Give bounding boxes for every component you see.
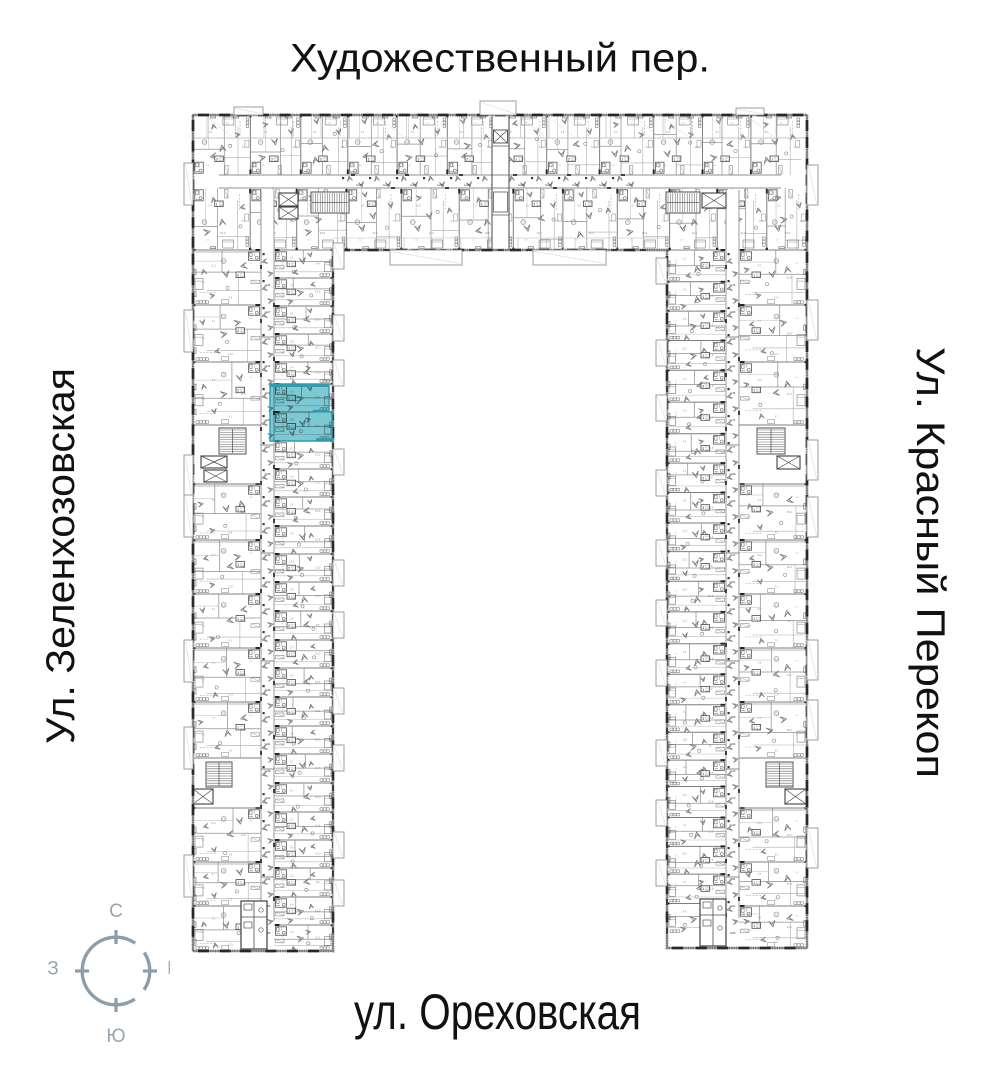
svg-text:36.4: 36.4: [705, 509, 709, 511]
svg-text:12.0: 12.0: [315, 852, 321, 856]
svg-text:1: 1: [702, 354, 704, 358]
svg-text:36.4: 36.4: [291, 293, 295, 295]
svg-text:2: 2: [368, 202, 370, 206]
svg-text:2: 2: [466, 157, 468, 161]
svg-text:8.2: 8.2: [316, 880, 320, 884]
svg-text:1: 1: [753, 389, 755, 393]
svg-text:1: 1: [288, 739, 290, 743]
svg-text:1: 1: [237, 881, 239, 885]
svg-text:36.4: 36.4: [291, 741, 295, 743]
svg-text:36.4: 36.4: [372, 205, 376, 207]
svg-text:№15: №15: [518, 183, 524, 187]
svg-text:2: 2: [237, 329, 239, 333]
svg-text:36.4: 36.4: [756, 276, 760, 278]
svg-text:12.2: 12.2: [787, 565, 793, 569]
svg-text:15.2: 15.2: [785, 231, 791, 235]
svg-text:2: 2: [288, 567, 290, 571]
svg-text:1: 1: [288, 910, 290, 914]
svg-text:2: 2: [702, 476, 704, 480]
svg-text:17.5: 17.5: [787, 882, 793, 886]
svg-text:15.2: 15.2: [787, 510, 793, 514]
svg-text:10.6: 10.6: [774, 941, 779, 944]
svg-text:2: 2: [288, 291, 290, 295]
svg-text:36.4: 36.4: [705, 419, 709, 421]
svg-text:1: 1: [753, 508, 755, 512]
svg-text:36.4: 36.4: [705, 327, 709, 329]
svg-text:36.4: 36.4: [756, 566, 760, 568]
svg-text:36.4: 36.4: [240, 276, 244, 278]
svg-text:36.4: 36.4: [705, 356, 709, 358]
svg-text:36.4: 36.4: [371, 160, 375, 162]
svg-text:1: 1: [753, 329, 755, 333]
svg-text:10.1: 10.1: [315, 936, 321, 940]
svg-text:36.4: 36.4: [756, 834, 760, 836]
svg-text:1: 1: [237, 925, 239, 929]
svg-text:2: 2: [237, 273, 239, 277]
svg-text:36.4: 36.4: [536, 205, 540, 207]
svg-text:36.4: 36.4: [705, 567, 709, 569]
svg-text:1: 1: [753, 617, 755, 621]
svg-text:36.4: 36.4: [291, 265, 295, 267]
svg-text:36.4: 36.4: [705, 267, 709, 269]
svg-text:8.7: 8.7: [709, 744, 713, 748]
svg-text:№40: №40: [437, 183, 443, 187]
svg-text:11.5: 11.5: [682, 530, 687, 533]
svg-text:Ул. Зеленхозовская: Ул. Зеленхозовская: [39, 368, 83, 744]
svg-text:36.4: 36.4: [240, 620, 244, 622]
svg-text:8.3: 8.3: [787, 673, 791, 677]
svg-text:10.0: 10.0: [315, 346, 321, 350]
svg-text:1: 1: [585, 202, 587, 206]
svg-text:10.4: 10.4: [774, 296, 779, 299]
svg-text:2: 2: [288, 681, 290, 685]
svg-text:1: 1: [481, 202, 483, 206]
svg-text:11.2: 11.2: [315, 652, 321, 656]
svg-text:12.9: 12.9: [289, 560, 294, 563]
svg-text:36.4: 36.4: [240, 884, 244, 886]
svg-text:15.9: 15.9: [315, 795, 321, 799]
svg-text:1: 1: [702, 657, 704, 661]
svg-text:С: С: [109, 901, 123, 922]
svg-text:1: 1: [288, 595, 290, 599]
svg-text:36.4: 36.4: [274, 160, 278, 162]
svg-text:11.1: 11.1: [289, 875, 294, 878]
svg-text:14.5: 14.5: [315, 290, 321, 294]
svg-text:36.4: 36.4: [756, 674, 760, 676]
svg-text:36.4: 36.4: [705, 387, 709, 389]
svg-text:12.4: 12.4: [591, 146, 596, 149]
svg-text:13.0: 13.0: [429, 231, 435, 235]
svg-text:36.4: 36.4: [240, 332, 244, 334]
svg-text:1: 1: [702, 416, 704, 420]
svg-text:12.5: 12.5: [757, 822, 762, 825]
svg-text:36.4: 36.4: [291, 349, 295, 351]
svg-text:12.7: 12.7: [289, 646, 294, 649]
svg-text:10.2: 10.2: [211, 554, 216, 557]
svg-text:13.9: 13.9: [372, 231, 378, 235]
svg-text:36.4: 36.4: [641, 205, 645, 207]
svg-text:3: 3: [702, 324, 704, 328]
svg-text:1: 1: [771, 157, 773, 161]
svg-text:12.5: 12.5: [682, 559, 687, 562]
svg-text:13.8: 13.8: [757, 379, 762, 382]
svg-text:Художественный пер.: Художественный пер.: [290, 37, 710, 81]
svg-text:11.8: 11.8: [774, 694, 779, 697]
svg-text:1: 1: [515, 157, 517, 161]
svg-text:16.4: 16.4: [315, 824, 321, 828]
svg-text:36.4: 36.4: [705, 775, 709, 777]
svg-text:13.4: 13.4: [682, 589, 687, 592]
svg-text:12.7: 12.7: [776, 205, 781, 208]
svg-text:1: 1: [288, 653, 290, 657]
svg-text:З: З: [47, 959, 58, 980]
svg-text:11.0: 11.0: [315, 566, 321, 570]
svg-text:36.4: 36.4: [291, 655, 295, 657]
svg-text:1: 1: [753, 726, 755, 730]
svg-text:36.4: 36.4: [291, 713, 295, 715]
svg-text:14.8: 14.8: [740, 231, 746, 235]
svg-text:12.4: 12.4: [589, 231, 595, 235]
svg-text:13.9: 13.9: [228, 694, 233, 697]
svg-text:Ул. Красный Перекоп: Ул. Красный Перекоп: [908, 347, 952, 778]
svg-text:1: 1: [288, 710, 290, 714]
svg-text:1: 1: [237, 508, 239, 512]
svg-text:3: 3: [271, 157, 273, 161]
svg-text:1: 1: [722, 157, 724, 161]
svg-text:36.4: 36.4: [291, 375, 295, 377]
svg-text:36.4: 36.4: [677, 160, 681, 162]
svg-text:2: 2: [753, 671, 755, 675]
svg-text:12.7: 12.7: [289, 447, 294, 450]
svg-text:3: 3: [288, 372, 290, 376]
svg-text:1: 1: [702, 688, 704, 692]
svg-text:№12: №12: [626, 183, 632, 187]
svg-text:1: 1: [288, 263, 290, 267]
svg-text:3: 3: [216, 157, 218, 161]
svg-text:1: 1: [621, 157, 623, 161]
svg-text:2: 2: [288, 624, 290, 628]
svg-text:13.7: 13.7: [787, 833, 793, 837]
svg-text:36.4: 36.4: [219, 205, 223, 207]
svg-text:10.0: 10.0: [800, 220, 805, 223]
svg-text:36.4: 36.4: [756, 620, 760, 622]
svg-text:36.4: 36.4: [705, 479, 709, 481]
svg-text:3: 3: [288, 319, 290, 323]
svg-text:19.0: 19.0: [536, 231, 542, 235]
svg-text:16.1: 16.1: [315, 453, 321, 457]
svg-text:№11: №11: [572, 183, 578, 187]
svg-text:36.4: 36.4: [756, 927, 760, 929]
svg-text:13.3: 13.3: [228, 353, 233, 356]
svg-text:36.4: 36.4: [725, 160, 729, 162]
svg-text:36.4: 36.4: [484, 205, 488, 207]
svg-text:13.4: 13.4: [211, 822, 216, 825]
svg-text:1: 1: [753, 924, 755, 928]
svg-text:№13: №13: [545, 183, 551, 187]
svg-text:11.3: 11.3: [682, 619, 687, 622]
svg-text:12.8: 12.8: [787, 276, 793, 280]
svg-text:№18: №18: [356, 183, 362, 187]
svg-text:12.8: 12.8: [708, 830, 714, 834]
svg-text:36.4: 36.4: [291, 912, 295, 914]
svg-text:11.2: 11.2: [473, 205, 478, 208]
svg-text:1: 1: [237, 671, 239, 675]
svg-text:36.4: 36.4: [705, 890, 709, 892]
svg-text:3: 3: [702, 717, 704, 721]
svg-text:1: 1: [702, 295, 704, 299]
svg-text:2: 2: [288, 825, 290, 829]
svg-text:36.4: 36.4: [291, 884, 295, 886]
svg-text:11.9: 11.9: [228, 944, 233, 947]
svg-text:10.0: 10.0: [787, 332, 793, 336]
svg-text:36.4: 36.4: [291, 627, 295, 629]
svg-text:36.4: 36.4: [740, 205, 744, 207]
svg-text:10.7: 10.7: [757, 608, 762, 611]
svg-text:14.4: 14.4: [315, 766, 321, 770]
svg-text:12.5: 12.5: [709, 220, 714, 223]
svg-text:13.7: 13.7: [526, 205, 531, 208]
svg-text:11.9: 11.9: [315, 538, 321, 542]
svg-text:12.3: 12.3: [774, 353, 779, 356]
svg-text:36.4: 36.4: [518, 160, 522, 162]
svg-text:15.6: 15.6: [315, 594, 321, 598]
svg-text:№35: №35: [599, 183, 605, 187]
svg-text:11.6: 11.6: [315, 709, 321, 713]
svg-text:1: 1: [237, 726, 239, 730]
svg-text:№56: №56: [730, 931, 736, 935]
svg-text:2: 2: [638, 202, 640, 206]
svg-text:2: 2: [702, 264, 704, 268]
svg-text:36.4: 36.4: [469, 160, 473, 162]
svg-text:Ю: Ю: [106, 1026, 125, 1047]
svg-text:36.4: 36.4: [291, 513, 295, 515]
svg-text:3: 3: [702, 447, 704, 451]
svg-text:12.6: 12.6: [289, 340, 294, 343]
svg-text:36.4: 36.4: [571, 160, 575, 162]
svg-text:1: 1: [753, 273, 755, 277]
svg-text:11.7: 11.7: [338, 220, 343, 223]
svg-text:1: 1: [702, 626, 704, 630]
svg-text:1: 1: [417, 157, 419, 161]
svg-text:18.6: 18.6: [315, 318, 321, 322]
svg-text:14.6: 14.6: [315, 680, 321, 684]
svg-text:36.4: 36.4: [756, 884, 760, 886]
svg-text:13.8: 13.8: [757, 554, 762, 557]
svg-text:1: 1: [673, 157, 675, 161]
svg-text:1: 1: [702, 772, 704, 776]
svg-text:1: 1: [288, 454, 290, 458]
svg-text:36.4: 36.4: [705, 629, 709, 631]
svg-text:36.4: 36.4: [705, 538, 709, 540]
svg-text:9.6: 9.6: [316, 623, 320, 627]
svg-text:10.8: 10.8: [416, 205, 421, 208]
svg-text:36.4: 36.4: [240, 510, 244, 512]
svg-text:11.7: 11.7: [694, 146, 699, 149]
svg-text:12.5: 12.5: [692, 231, 698, 235]
svg-text:36.4: 36.4: [756, 391, 760, 393]
svg-text:36.4: 36.4: [624, 160, 628, 162]
svg-text:19.9: 19.9: [642, 231, 648, 235]
svg-text:1: 1: [216, 202, 218, 206]
svg-text:3: 3: [702, 384, 704, 388]
svg-text:36.4: 36.4: [291, 598, 295, 600]
svg-text:36.4: 36.4: [774, 160, 778, 162]
svg-text:12.8: 12.8: [666, 131, 671, 134]
svg-text:15.2: 15.2: [220, 231, 226, 235]
svg-text:11.3: 11.3: [682, 766, 687, 769]
svg-text:36.4: 36.4: [219, 160, 223, 162]
svg-text:3: 3: [702, 506, 704, 510]
svg-text:1: 1: [702, 887, 704, 891]
svg-text:36.4: 36.4: [240, 566, 244, 568]
svg-text:1: 1: [237, 617, 239, 621]
svg-text:№34: №34: [383, 183, 389, 187]
svg-text:12.5: 12.5: [228, 586, 233, 589]
svg-text:1: 1: [368, 157, 370, 161]
svg-text:36.4: 36.4: [756, 510, 760, 512]
svg-text:13.7: 13.7: [292, 146, 297, 149]
svg-text:12.1: 12.1: [211, 265, 216, 268]
svg-text:2: 2: [237, 389, 239, 393]
svg-text:19.9: 19.9: [320, 231, 326, 235]
svg-text:36.4: 36.4: [323, 160, 327, 162]
svg-text:1: 1: [702, 859, 704, 863]
svg-text:3: 3: [533, 202, 535, 206]
svg-text:9.4: 9.4: [316, 262, 320, 266]
svg-text:13.8: 13.8: [682, 739, 687, 742]
svg-text:11.7: 11.7: [439, 146, 444, 149]
svg-text:36.4: 36.4: [291, 770, 295, 772]
svg-text:36.4: 36.4: [291, 569, 295, 571]
svg-text:14.5: 14.5: [315, 370, 321, 374]
svg-text:1: 1: [288, 482, 290, 486]
svg-text:3: 3: [702, 565, 704, 569]
svg-text:№29: №29: [410, 183, 416, 187]
svg-text:2: 2: [288, 510, 290, 514]
svg-text:14.1: 14.1: [787, 925, 793, 929]
svg-text:10.2: 10.2: [682, 853, 687, 856]
svg-text:3: 3: [288, 881, 290, 885]
svg-text:1: 1: [753, 881, 755, 885]
svg-text:36.4: 36.4: [291, 456, 295, 458]
svg-text:2: 2: [753, 563, 755, 567]
svg-text:36.4: 36.4: [420, 160, 424, 162]
svg-text:19.9: 19.9: [485, 231, 491, 235]
svg-text:14.9: 14.9: [241, 833, 247, 837]
svg-text:15.6: 15.6: [708, 800, 714, 804]
svg-text:36.4: 36.4: [291, 827, 295, 829]
svg-text:36.4: 36.4: [291, 684, 295, 686]
svg-text:2: 2: [288, 853, 290, 857]
svg-text:36.4: 36.4: [705, 297, 709, 299]
svg-text:18.4: 18.4: [787, 728, 793, 732]
svg-text:12.8: 12.8: [315, 909, 321, 913]
svg-text:36.4: 36.4: [705, 449, 709, 451]
svg-text:2: 2: [288, 767, 290, 771]
svg-text:1: 1: [753, 831, 755, 835]
svg-text:36.4: 36.4: [291, 484, 295, 486]
svg-text:№25: №25: [464, 183, 470, 187]
svg-text:1: 1: [702, 536, 704, 540]
svg-text:1: 1: [288, 347, 290, 351]
svg-text:18.6: 18.6: [315, 509, 321, 513]
svg-text:8.1: 8.1: [787, 619, 791, 623]
svg-text:36.4: 36.4: [705, 861, 709, 863]
svg-text:15.3: 15.3: [315, 738, 321, 742]
svg-text:14.5: 14.5: [708, 594, 714, 598]
svg-text:36.4: 36.4: [756, 332, 760, 334]
svg-text:36.4: 36.4: [756, 728, 760, 730]
svg-text:2: 2: [568, 157, 570, 161]
svg-text:36.4: 36.4: [291, 855, 295, 857]
svg-text:3: 3: [320, 157, 322, 161]
svg-text:36.4: 36.4: [705, 720, 709, 722]
svg-text:36.4: 36.4: [240, 674, 244, 676]
svg-text:36.4: 36.4: [240, 728, 244, 730]
svg-text:36.4: 36.4: [705, 690, 709, 692]
svg-text:11.9: 11.9: [787, 392, 793, 396]
svg-text:36.4: 36.4: [588, 205, 592, 207]
svg-text:12.2: 12.2: [682, 348, 687, 351]
svg-text:36.4: 36.4: [240, 391, 244, 393]
svg-text:1: 1: [237, 563, 239, 567]
svg-text:36.4: 36.4: [705, 660, 709, 662]
svg-text:ул. Ореховская: ул. Ореховская: [354, 984, 641, 1040]
svg-text:36.4: 36.4: [291, 321, 295, 323]
svg-text:17.1: 17.1: [315, 481, 321, 485]
